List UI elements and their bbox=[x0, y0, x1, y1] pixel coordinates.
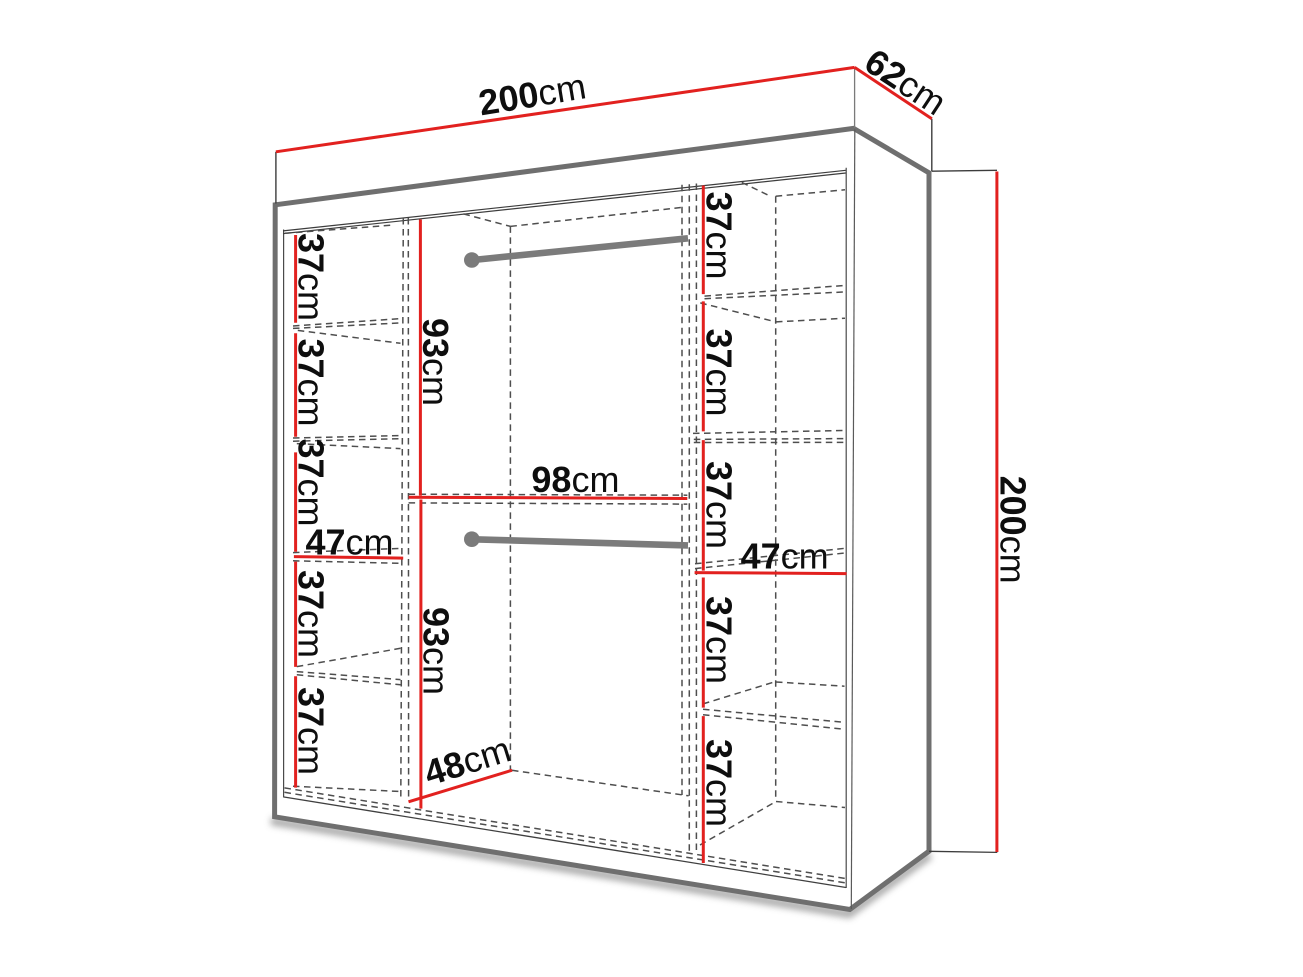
svg-text:47cm: 47cm bbox=[306, 522, 394, 563]
svg-text:37cm: 37cm bbox=[291, 570, 332, 658]
svg-text:93cm: 93cm bbox=[416, 607, 457, 695]
svg-text:37cm: 37cm bbox=[698, 461, 739, 549]
svg-text:200cm: 200cm bbox=[993, 476, 1034, 584]
svg-text:98cm: 98cm bbox=[531, 459, 619, 500]
svg-text:37cm: 37cm bbox=[291, 687, 332, 775]
svg-text:37cm: 37cm bbox=[291, 439, 332, 527]
svg-text:93cm: 93cm bbox=[415, 318, 456, 406]
svg-text:37cm: 37cm bbox=[698, 192, 739, 280]
svg-text:37cm: 37cm bbox=[698, 739, 739, 827]
svg-text:47cm: 47cm bbox=[741, 536, 829, 577]
svg-text:37cm: 37cm bbox=[698, 596, 739, 684]
svg-text:37cm: 37cm bbox=[698, 329, 739, 417]
svg-text:37cm: 37cm bbox=[291, 339, 332, 427]
svg-text:37cm: 37cm bbox=[291, 233, 332, 321]
